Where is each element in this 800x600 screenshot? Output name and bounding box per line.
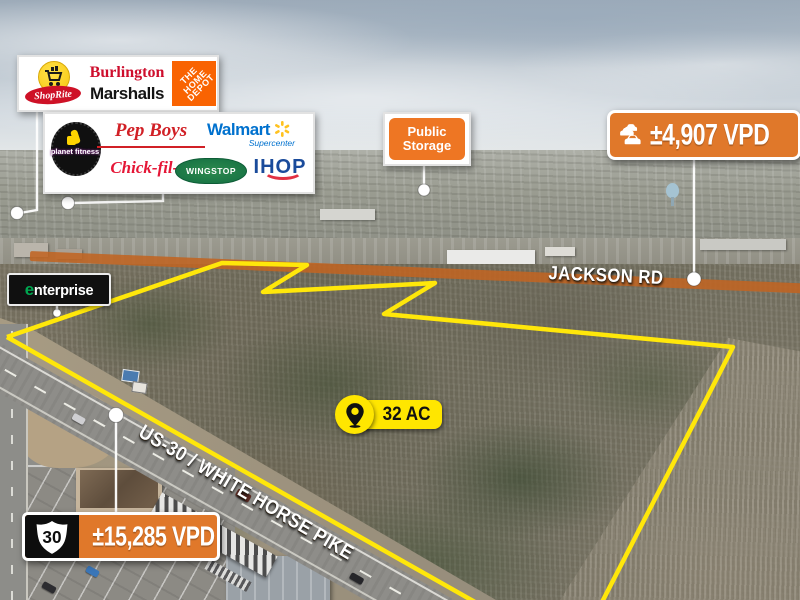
burlington-logo: Burlington [81, 64, 173, 84]
home-depot-wordmark: THE HOME DEPOT [172, 61, 216, 104]
aerial-listing-image: JACKSON RD US-30 / WHITE HORSE PIKE Shop… [0, 0, 800, 600]
wingstop-logo: WINGSTOP [175, 158, 247, 184]
traffic-cars-icon [618, 117, 645, 153]
walmart-wordmark: Walmart [207, 120, 270, 139]
us30-vpd-value: ±15,285 VPD [92, 520, 214, 553]
retail-logo-panel-2: planet fitness Pep Boys Chick-fil-A Walm… [43, 112, 315, 194]
public-storage-logo-panel: Public Storage [383, 112, 471, 166]
jackson-rd-traffic-callout: ±4,907 VPD [607, 110, 800, 160]
shoprite-wordmark: ShopRite [24, 84, 81, 106]
pep-boys-logo: Pep Boys [97, 120, 205, 148]
planet-fitness-logo: planet fitness [50, 122, 98, 182]
enterprise-logo-panel: enterprise [7, 273, 111, 306]
pin-circle [335, 395, 374, 434]
jackson-rd-vpd-value: ±4,907 VPD [650, 118, 769, 151]
public-storage-line2: Storage [403, 139, 451, 153]
svg-text:30: 30 [42, 526, 61, 546]
retail-logo-panel-1: ShopRite Burlington Marshalls THE HOME D… [17, 55, 219, 112]
shoprite-logo: ShopRite [25, 60, 79, 107]
leader-panel1 [20, 108, 37, 213]
marshalls-logo: Marshalls [81, 84, 173, 104]
walmart-logo: Walmart Supercenter [207, 120, 309, 152]
public-storage-line1: Public [407, 125, 446, 139]
public-storage-logo: Public Storage [389, 118, 465, 160]
us30-traffic-callout: 30 ±15,285 VPD [22, 512, 220, 561]
route-shield-box: 30 [25, 515, 79, 558]
planet-fitness-wordmark: planet fitness [50, 148, 100, 156]
acreage-marker: 32 AC [335, 395, 435, 435]
leader-dots [11, 184, 702, 423]
home-depot-logo: THE HOME DEPOT [172, 61, 216, 106]
us-route-30-shield-icon: 30 [32, 518, 72, 556]
walmart-spark-icon [274, 121, 290, 137]
enterprise-wordmark: enterprise [25, 280, 94, 300]
map-pin-icon [344, 402, 366, 428]
ihop-wordmark: IHOP [254, 156, 307, 179]
acreage-value: 32 AC [383, 404, 431, 426]
us30-vpd-section: ±15,285 VPD [79, 521, 220, 552]
ihop-logo: IHOP [251, 156, 309, 186]
walmart-supercenter-label: Supercenter [249, 138, 295, 148]
